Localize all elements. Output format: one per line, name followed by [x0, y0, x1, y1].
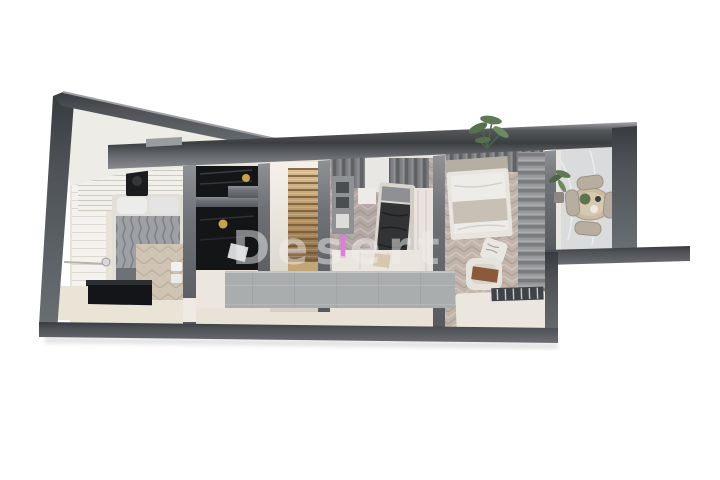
speaker-cone-icon: [132, 176, 142, 186]
dining-chair: [574, 221, 601, 236]
room-left-bedroom: [58, 167, 185, 326]
nightstand: [358, 188, 376, 204]
daybed-slat-top: [491, 286, 543, 301]
gold-lamp-icon: [242, 174, 250, 182]
balcony-side-wall: [612, 126, 637, 252]
door-opening: [183, 298, 196, 322]
towel: [171, 274, 182, 283]
dining-chair: [565, 189, 581, 216]
gold-lamp-icon: [219, 220, 228, 229]
pillow: [117, 197, 147, 214]
sconce-lamp-icon: [102, 258, 110, 266]
room-right-bedroom: [445, 150, 547, 332]
floor-plan-render: Desert: [0, 0, 720, 480]
pillow: [381, 186, 412, 203]
side-curtain-panel: [518, 152, 545, 298]
table-decor: [595, 196, 601, 202]
pillow: [149, 197, 179, 214]
table-plant-icon: [580, 194, 591, 205]
vanity-edge: [86, 280, 152, 285]
towel: [171, 262, 182, 271]
plant-pot: [554, 192, 564, 203]
bed-light: [445, 156, 512, 240]
watermark-text: Desert: [232, 221, 447, 275]
table-dish: [590, 205, 598, 213]
daybed: [455, 286, 546, 331]
corridor-concrete-tiles: [225, 272, 455, 308]
partition-notch: [228, 186, 258, 198]
cabinet-door: [336, 182, 349, 193]
cabinet-door: [336, 197, 349, 208]
balcony-terrace: [556, 144, 618, 254]
bed-runner: [452, 198, 507, 224]
closet-cabinet-front: [196, 270, 225, 308]
